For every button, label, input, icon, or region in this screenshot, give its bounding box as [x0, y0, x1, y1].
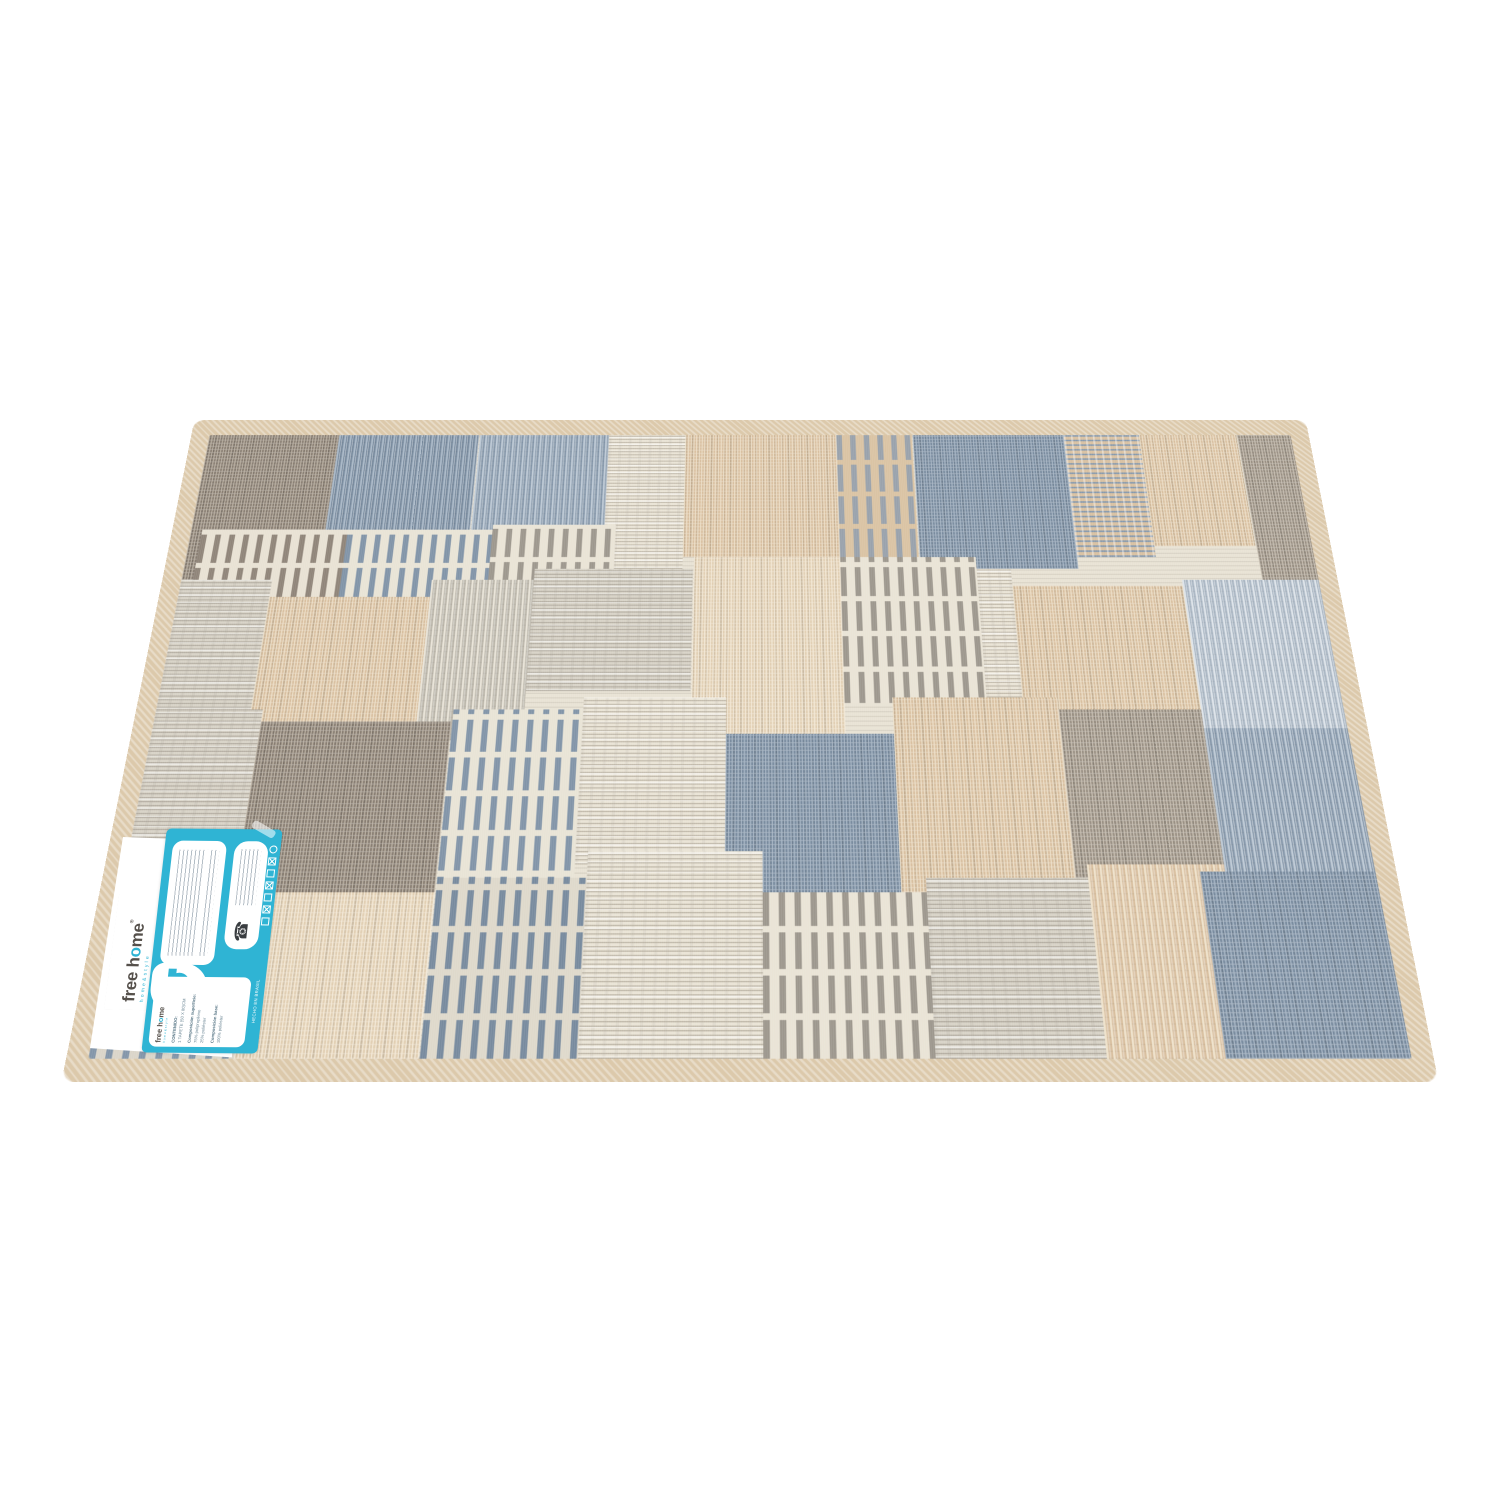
phone-icon: ☎	[230, 914, 254, 948]
base-composition-text: Composición base: 100% poliéster	[209, 981, 229, 1043]
rug-patch	[575, 697, 726, 864]
rug-patch	[925, 878, 1107, 1059]
wash-care-icon	[269, 845, 278, 853]
product-photo: free home® home&style ☎ free home home&s…	[0, 0, 1500, 1500]
bleach-care-icon	[268, 857, 277, 865]
rug-patch	[419, 878, 587, 1059]
origin-text: HECHO EN BRASIL	[251, 979, 261, 1023]
customer-service-box: ☎	[223, 841, 269, 949]
rug-patch	[763, 892, 936, 1059]
iron-care-icon	[265, 881, 274, 889]
rug-patchwork-field	[88, 435, 1411, 1059]
rug-patch	[840, 557, 987, 703]
importer-fine-print-box	[159, 841, 227, 965]
rug-patch	[912, 435, 1078, 568]
rug-patch	[682, 435, 840, 557]
professional-clean-care-icon	[261, 917, 270, 925]
dry-clean-care-icon	[264, 893, 273, 901]
rug	[61, 420, 1438, 1082]
registered-mark: ®	[129, 920, 135, 924]
brand-logo-small: free home home&style	[154, 981, 173, 1043]
rug-patch	[603, 435, 685, 568]
fine-print-lines	[235, 849, 261, 905]
rug-patch	[578, 851, 763, 1059]
rug-patch	[1200, 871, 1412, 1059]
rug-patch	[836, 435, 919, 557]
rug-patch	[526, 569, 694, 691]
product-info-box: free home home&style CONTENIDO: 1 TAPETE…	[148, 977, 252, 1048]
tumble-dry-care-icon	[266, 869, 275, 877]
fine-print-lines	[167, 850, 219, 956]
wring-care-icon	[262, 905, 271, 913]
surface-composition-text: Composición superficie: 75% polipropilen…	[186, 981, 212, 1043]
